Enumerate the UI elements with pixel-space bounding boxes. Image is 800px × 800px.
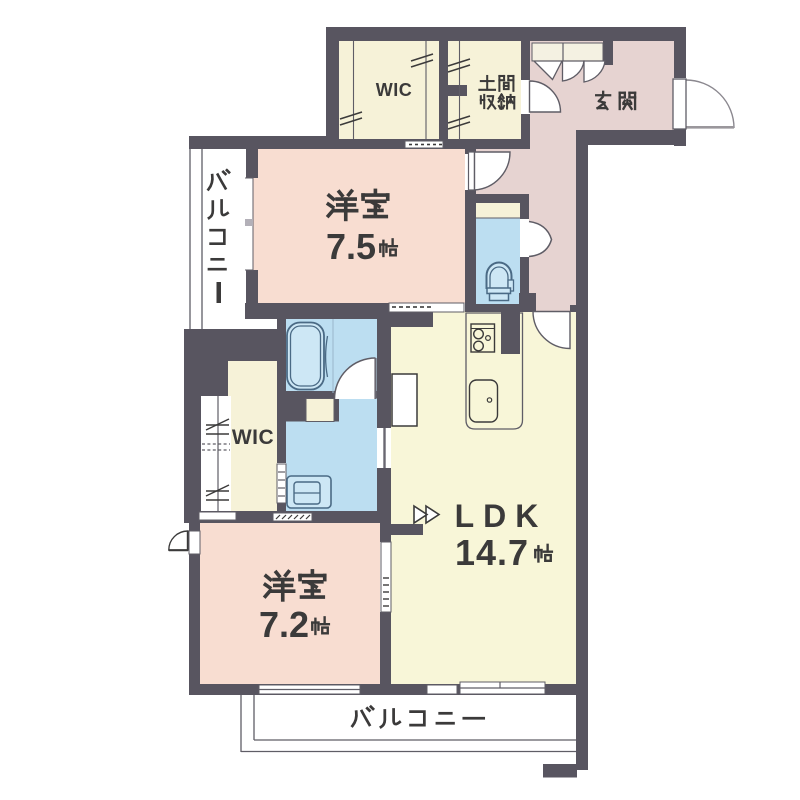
svg-text:WIC: WIC: [376, 80, 413, 100]
svg-text:14.7: 14.7: [455, 532, 529, 573]
svg-text:LDK: LDK: [455, 498, 548, 534]
svg-text:7.5: 7.5: [326, 226, 376, 267]
svg-text:7.2: 7.2: [259, 604, 309, 645]
svg-text:WIC: WIC: [232, 426, 274, 449]
